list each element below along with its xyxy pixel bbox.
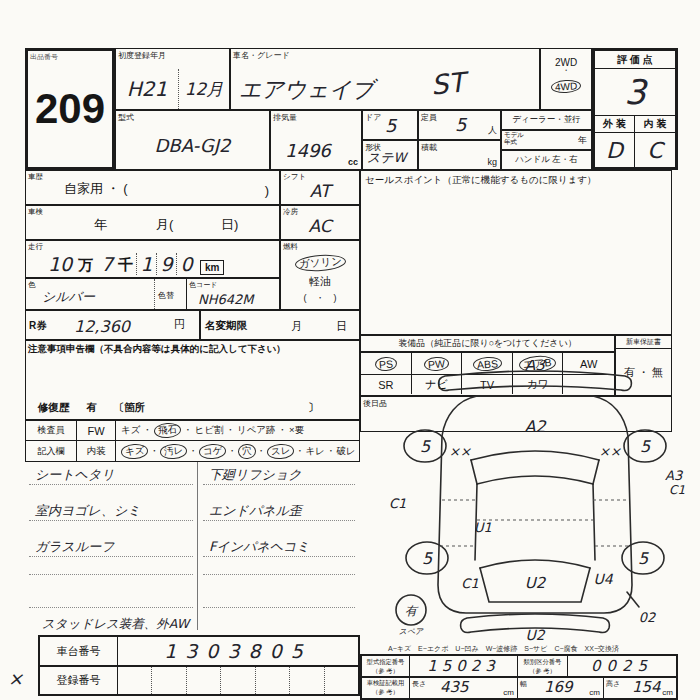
dealer-parallel-cell: ディーラー・並行: [501, 110, 592, 130]
doors-box: ドア 5: [362, 110, 418, 140]
sep: ・: [183, 424, 193, 437]
class-number-ref: （参 考）: [518, 667, 567, 676]
note-right-3: Fインパネヘコミ: [203, 538, 355, 557]
sep: ・: [225, 424, 235, 437]
doors-label: ドア: [365, 112, 381, 123]
tread-front-left: 5: [420, 437, 431, 456]
opt-int-kizu-circled: キズ: [121, 443, 149, 460]
drive-4wd-selected: 4WD: [550, 79, 581, 94]
first-registration-box: 初度登録年月 H21 12月: [115, 48, 230, 110]
score-label: 評 価 点: [595, 51, 675, 69]
mark-tailgate: U2: [525, 574, 547, 592]
opt-sure-circled: スレ: [266, 443, 294, 460]
name-change-day: 日: [336, 319, 347, 334]
chassis-number-box: 車台番号 1303805: [38, 635, 360, 667]
interior-cell-label: 内装: [76, 441, 116, 461]
repair-history-value: 有: [86, 401, 97, 413]
sep: ・: [149, 445, 159, 458]
height-label: 高さ: [606, 679, 620, 689]
mileage-digit-2: 9: [156, 253, 176, 275]
exterior-grade-value: D: [595, 133, 635, 167]
mark-left-rear-fender: C1: [461, 576, 478, 591]
mark-right-rear-corner: 02: [639, 610, 656, 625]
note-extra-studless: スタッドレス装着、外AW: [42, 616, 189, 633]
repair-history-bracket: 〔箇所: [114, 401, 146, 413]
opt-x-required: ×要: [289, 424, 304, 437]
name-change-month: 月: [291, 319, 302, 334]
color-value: シルバー: [42, 288, 95, 306]
opt-hibiware: ヒビ割: [194, 424, 223, 437]
class-number-value: 0025: [568, 656, 676, 676]
car-grade-value: ST: [429, 66, 466, 100]
recycle-ticket-label: R券: [29, 319, 46, 333]
entry-column-label: 記入欄: [26, 441, 76, 461]
note-right-2: エンドパネル歪: [203, 502, 355, 521]
mark-right-side-c1: C1: [669, 483, 685, 497]
car-name-label: 車名・グレード: [233, 50, 290, 61]
shape-box: 形状 ステW: [362, 140, 418, 170]
mileage-unit: km: [200, 260, 224, 275]
sep: ・: [188, 445, 198, 458]
width-unit: cm: [589, 688, 600, 697]
opt-tobiishi-circled: 飛石: [153, 422, 181, 439]
fuel-label: 燃料: [283, 242, 298, 252]
shaken-day: 日): [221, 216, 238, 234]
note-left-3: ガラスルーフ: [29, 538, 193, 557]
history-value: 自家用 ・ (: [64, 180, 128, 198]
mark-right-rear-fender: U4: [593, 571, 613, 587]
score-box: 評 価 点 3 外 装 内 装 D C: [592, 48, 678, 170]
first-registration-month: 12月: [178, 69, 229, 109]
sep: ・: [278, 424, 288, 437]
caution-box: 注意事項申告欄（不具合内容等は具体的に記入して下さい） 修復歴 有 〔箇所 〕: [25, 340, 360, 420]
type-number-value: 15023: [410, 656, 518, 676]
model-code-label: 型式: [118, 112, 134, 123]
fuel-diesel: 軽油: [281, 274, 359, 289]
shaken-month: 月(: [156, 216, 173, 234]
type-number-ref: （参 考）: [362, 667, 409, 676]
color-code-value: NH642M: [198, 292, 254, 307]
opt-kizu: キズ: [121, 424, 140, 437]
repair-history-label: 修復歴: [38, 401, 70, 413]
caution-label: 注意事項申告欄（不具合内容等は具体的に記入して下さい）: [26, 341, 359, 358]
exterior-grade-label: 外 装: [595, 116, 635, 132]
doc-label: 車検証記載用: [362, 679, 409, 688]
mileage-sen-unit: 千: [118, 256, 136, 275]
handle-cell: ハンドル 左・右: [501, 150, 592, 170]
history-label: 車歴: [28, 172, 43, 182]
drive-type-box: 2WD ・ 4WD: [540, 48, 592, 110]
sep: ・: [256, 445, 266, 458]
inspector-row-interior: 記入欄 内装 キズ・ 汚レ・ コゲ・ 穴・ スレ・ キレ・ 破レ: [25, 441, 360, 462]
sales-point-box: セールスポイント（正常に機能するものに限ります）: [360, 170, 672, 335]
height-unit: cm: [662, 688, 673, 697]
chassis-number-label: 車台番号: [40, 637, 118, 665]
dimensions-row: 車検証記載用 （参 考） 長さ 435 cm 幅 169 cm 高さ 154 c…: [360, 678, 678, 700]
doors-value: 5: [385, 115, 396, 136]
note-left-1: シートヘタリ: [29, 466, 193, 485]
mark-left-side: C1: [389, 496, 406, 511]
car-name-value: エアウェイブ: [239, 75, 374, 105]
spare-tire-present: 有: [405, 604, 419, 618]
shape-value: ステW: [367, 149, 406, 167]
repair-history-bracket-close: 〕: [308, 401, 319, 413]
tread-rear-left: 5: [422, 549, 433, 568]
shift-label: シフト: [283, 172, 306, 182]
opt-yogore-circled: 汚レ: [159, 443, 187, 460]
note-left-2: 室内ヨゴレ、シミ: [29, 502, 193, 521]
displacement-value: 1496: [285, 140, 331, 161]
load-label: 積載: [421, 142, 437, 153]
opt-ana-circled: 穴: [237, 443, 256, 459]
capacity-value: 5: [455, 114, 466, 135]
history-box: 車歴 自家用 ・ ( ): [25, 170, 280, 205]
drive-separator: ・: [541, 68, 591, 73]
type-number-row: 型式指定番号 （参 考） 15023 類別区分番号 （参 考） 0025: [360, 654, 678, 678]
inspector-glass-code: FW: [76, 421, 116, 440]
type-number-label: 型式指定番号: [362, 658, 409, 667]
displacement-box: 排気量 1496 cc: [270, 110, 362, 170]
model-year-unit: 年: [578, 134, 587, 147]
class-number-label: 類別区分番号: [518, 658, 567, 667]
width-label: 幅: [520, 679, 527, 689]
shaken-year: 年: [94, 216, 107, 234]
registration-number-box: 登録番号: [38, 667, 360, 696]
damage-diagram: A3 A2 ×× ×× 5 5 5 5 C1 U1 C1 U2 U4 02 U2…: [385, 360, 685, 642]
mileage-man-unit: 万: [78, 256, 96, 275]
height-value: 154: [632, 678, 661, 696]
tread-rear-right: 5: [638, 549, 649, 568]
car-name-box: 車名・グレード エアウェイブ ST: [230, 48, 540, 110]
chassis-number-value: 1303805: [118, 637, 358, 665]
mark-right-side-a3: A3: [665, 468, 684, 483]
mileage-digit-1: 1: [136, 253, 156, 275]
name-change-box: 名変期限 月 日: [200, 310, 360, 340]
model-code-box: 型式 DBA-GJ2: [115, 110, 270, 170]
mileage-digit-3: 0: [176, 253, 196, 275]
note-right-4: [203, 574, 355, 575]
opt-repair-ato: リペア跡: [237, 424, 276, 437]
model-code-value: DBA-GJ2: [116, 111, 269, 169]
auction-sheet-scan: { "sep": "・", "lot": {"label": "出品番号", "…: [0, 0, 700, 700]
x-mark: ×: [8, 668, 23, 689]
sep: ・: [295, 445, 305, 458]
color-label: 色: [28, 280, 36, 290]
mark-hood: A2: [524, 417, 547, 436]
width-value: 169: [544, 678, 573, 696]
recycle-ticket-value: 12,360: [74, 317, 130, 336]
note-right-1: 下廻リフショク: [203, 466, 355, 485]
mileage-man-digits: 10: [42, 253, 78, 275]
sep: ・: [227, 445, 237, 458]
equipment-header: 装備品（純正品に限り○をつけてください）: [360, 335, 615, 352]
first-registration-label: 初度登録年月: [118, 50, 166, 61]
ac-label: 冷房: [283, 207, 298, 217]
model-year-cell: モデル 年式 年: [501, 130, 592, 150]
lot-number-box: 出品番号 209: [25, 48, 115, 170]
displacement-unit: cc: [348, 157, 358, 167]
interior-damage-options: キズ・ 汚レ・ コゲ・ 穴・ スレ・ キレ・ 破レ: [116, 441, 359, 461]
warranty-label: 新車保証書: [616, 336, 671, 349]
interior-grade-label: 内 装: [635, 116, 675, 132]
score-value: 3: [595, 69, 675, 115]
glass-damage-options: キズ・ 飛石・ ヒビ割・ リペア跡・ ×要: [116, 421, 359, 440]
length-unit: cm: [503, 688, 514, 697]
note-left-4: [29, 574, 193, 575]
mileage-box: 走行 10 万 7 千 1 9 0 km: [25, 240, 280, 278]
inspector-label: 検査員: [26, 421, 76, 440]
windshield-bottom: [477, 476, 593, 484]
registration-number-label: 登録番号: [40, 667, 118, 694]
notes-area: シートヘタリ 室内ヨゴレ、シミ ガラスルーフ 下廻リフショク エンドパネル歪 F…: [25, 462, 360, 630]
recycle-ticket-unit: 円: [174, 317, 185, 332]
ac-box: 冷房 AC: [280, 205, 360, 240]
capacity-label: 定員: [421, 112, 437, 123]
shaken-box: 車検 年 月( 日): [25, 205, 280, 240]
rear-window: [480, 560, 590, 568]
interior-grade-value: C: [635, 133, 675, 167]
color-change-label: 色替: [158, 290, 174, 301]
lot-label: 出品番号: [30, 52, 58, 62]
fuel-gasoline-selected: ガソリン: [294, 253, 346, 273]
shaken-label: 車検: [28, 207, 43, 217]
opt-yabure: 破レ: [337, 445, 356, 458]
sales-point-label: セールスポイント（正常に機能するものに限ります）: [361, 171, 671, 190]
color-box: 色 シルバー 色替 色コード NH642M: [25, 278, 280, 310]
name-change-label: 名変期限: [205, 319, 247, 333]
doc-ref: （参 考）: [362, 688, 409, 697]
length-label: 長さ: [412, 679, 426, 689]
damage-code-legend: A−キズ E−エクボ U−凹み W−波修跡 S−サビ C−腐食 XX−交換済: [388, 644, 688, 654]
length-value: 435: [440, 678, 469, 696]
first-registration-era: H21: [116, 69, 178, 109]
mileage-sen-digit: 7: [96, 253, 118, 275]
later-items-label: 後日品: [363, 398, 387, 409]
note-left-5: [29, 607, 193, 608]
opt-koge-circled: コゲ: [198, 443, 226, 460]
windshield-top: [471, 451, 599, 460]
history-close-paren: ): [265, 183, 269, 198]
capacity-unit: 人: [488, 124, 497, 137]
recycle-ticket-box: R券 12,360 円: [25, 310, 200, 340]
model-year-label2: 年式: [504, 139, 517, 146]
sep: ・: [326, 445, 336, 458]
note-right-5: [203, 607, 355, 608]
shift-box: シフト AT: [280, 170, 360, 205]
color-code-label: 色コード: [189, 280, 217, 290]
sep: ・: [142, 424, 152, 437]
mark-front-bumper: A3: [525, 360, 546, 374]
mark-rear-bumper: U2: [525, 627, 545, 642]
load-box: 積載 kg: [418, 140, 501, 170]
mark-left-rear-door: U1: [474, 520, 492, 535]
fuel-paren: ( ・ ): [281, 292, 359, 305]
load-unit: kg: [487, 157, 497, 167]
lot-number: 209: [28, 51, 112, 167]
capacity-box: 定員 5 人: [418, 110, 501, 140]
inspector-row-exterior: 検査員 FW キズ・ 飛石・ ヒビ割・ リペア跡・ ×要: [25, 420, 360, 441]
spare-tire-label: スペア: [399, 627, 424, 636]
opt-kire: キレ: [306, 445, 325, 458]
mileage-label: 走行: [28, 242, 43, 252]
fuel-box: 燃料 ガソリン 軽油 ( ・ ): [280, 240, 360, 310]
displacement-label: 排気量: [273, 112, 297, 123]
mark-right-front-fender: ××: [599, 444, 621, 459]
mark-left-front-fender: ××: [449, 444, 471, 459]
tread-front-right: 5: [640, 437, 651, 456]
